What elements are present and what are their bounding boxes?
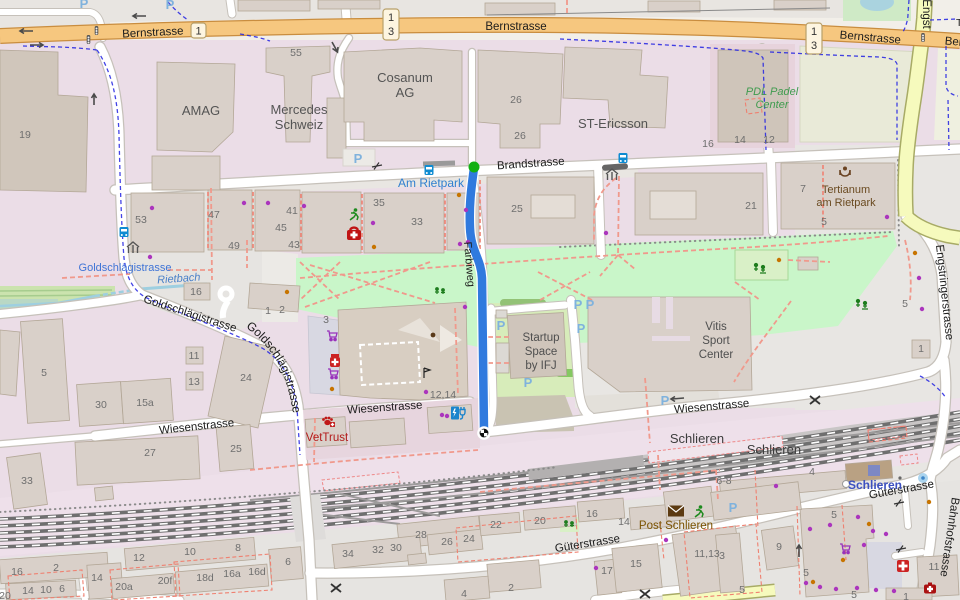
svg-text:by IFJ: by IFJ (525, 360, 556, 372)
svg-text:2: 2 (508, 582, 514, 594)
svg-text:P: P (80, 0, 89, 11)
svg-text:Bernstrasse: Bernstrasse (485, 21, 546, 33)
svg-text:5: 5 (831, 509, 837, 521)
svg-text:1: 1 (903, 591, 909, 600)
svg-text:VetTrust: VetTrust (306, 432, 349, 444)
svg-text:33: 33 (411, 216, 423, 228)
svg-text:43: 43 (288, 239, 300, 251)
svg-text:Schlieren: Schlieren (747, 442, 801, 457)
svg-text:1: 1 (388, 12, 394, 24)
svg-text:AG: AG (396, 85, 415, 100)
svg-text:35: 35 (373, 197, 385, 209)
svg-text:3: 3 (323, 314, 329, 326)
svg-text:Vitis: Vitis (705, 321, 727, 333)
svg-text:Schlieren: Schlieren (670, 431, 724, 446)
svg-text:1: 1 (918, 343, 924, 355)
svg-text:3: 3 (388, 26, 394, 38)
svg-text:PDL Padel: PDL Padel (746, 86, 799, 98)
svg-text:3: 3 (719, 550, 725, 562)
svg-text:Goldschlägistrasse: Goldschlägistrasse (79, 262, 172, 274)
svg-text:16: 16 (11, 566, 23, 578)
svg-text:4: 4 (461, 588, 467, 600)
svg-text:am Rietpark: am Rietpark (816, 197, 876, 209)
svg-text:53: 53 (135, 214, 147, 226)
svg-text:16: 16 (702, 138, 714, 150)
svg-text:P: P (577, 321, 586, 336)
svg-text:P: P (574, 297, 583, 312)
svg-text:14: 14 (618, 516, 630, 528)
svg-text:Tertianum: Tertianum (822, 184, 870, 196)
svg-text:28: 28 (415, 529, 427, 541)
svg-text:12: 12 (133, 552, 145, 564)
svg-text:Am Rietpark: Am Rietpark (398, 176, 465, 190)
svg-text:27: 27 (144, 447, 156, 459)
svg-text:8: 8 (235, 542, 241, 554)
svg-text:13: 13 (188, 376, 200, 388)
svg-text:15a: 15a (136, 397, 154, 409)
svg-text:21: 21 (745, 200, 757, 212)
svg-text:30: 30 (95, 399, 107, 411)
svg-text:18d: 18d (196, 572, 214, 584)
svg-text:20f: 20f (158, 575, 173, 587)
svg-text:15: 15 (630, 558, 642, 570)
svg-text:20: 20 (534, 515, 546, 527)
svg-text:9: 9 (776, 541, 782, 553)
svg-text:26: 26 (510, 94, 522, 106)
svg-text:14: 14 (22, 585, 34, 597)
svg-text:P: P (586, 297, 595, 312)
svg-text:ST-Ericsson: ST-Ericsson (578, 116, 648, 131)
svg-text:11,13: 11,13 (694, 548, 720, 560)
svg-text:6-8: 6-8 (716, 475, 731, 487)
svg-text:P: P (166, 0, 175, 12)
svg-text:5: 5 (739, 584, 745, 596)
svg-text:55: 55 (290, 47, 302, 59)
svg-text:6: 6 (285, 556, 291, 568)
svg-text:25: 25 (511, 203, 523, 215)
svg-text:Schweiz: Schweiz (275, 117, 323, 132)
svg-text:AMAG: AMAG (182, 103, 220, 118)
svg-text:Schlieren: Schlieren (848, 478, 902, 492)
svg-text:45: 45 (275, 222, 287, 234)
svg-text:Mercedes: Mercedes (270, 102, 328, 117)
svg-text:32: 32 (372, 544, 384, 556)
svg-text:19: 19 (19, 129, 31, 141)
svg-text:20a: 20a (115, 581, 133, 593)
svg-text:26: 26 (441, 536, 453, 548)
svg-text:P: P (354, 151, 363, 166)
svg-text:12: 12 (763, 134, 775, 146)
svg-text:10: 10 (184, 546, 196, 558)
svg-text:3: 3 (811, 40, 817, 52)
svg-text:17: 17 (601, 565, 613, 577)
svg-text:49: 49 (228, 240, 240, 252)
svg-text:Center: Center (699, 349, 734, 361)
svg-text:Post Schlieren: Post Schlieren (639, 520, 713, 532)
svg-text:12,14: 12,14 (430, 389, 456, 401)
svg-text:34: 34 (342, 548, 354, 560)
svg-text:16: 16 (190, 286, 202, 298)
svg-text:6: 6 (59, 583, 65, 595)
svg-text:Space: Space (525, 346, 558, 358)
svg-text:5: 5 (851, 589, 857, 600)
svg-text:Sport: Sport (702, 335, 730, 347)
svg-text:33: 33 (21, 475, 33, 487)
svg-text:10: 10 (40, 584, 52, 596)
svg-text:14: 14 (91, 572, 103, 584)
svg-text:Startup: Startup (522, 332, 559, 344)
svg-text:5: 5 (902, 298, 908, 310)
svg-text:14: 14 (734, 134, 746, 146)
svg-text:5: 5 (803, 567, 809, 579)
svg-text:4: 4 (809, 466, 815, 478)
svg-text:30: 30 (390, 542, 402, 554)
svg-text:1: 1 (195, 26, 201, 38)
svg-text:1: 1 (811, 26, 817, 38)
svg-text:16d: 16d (248, 566, 266, 578)
svg-text:16a: 16a (223, 568, 241, 580)
svg-text:Center: Center (755, 99, 789, 111)
svg-text:24: 24 (463, 533, 475, 545)
svg-text:41: 41 (286, 205, 298, 217)
svg-text:7: 7 (800, 183, 806, 195)
svg-text:26: 26 (514, 130, 526, 142)
svg-text:P: P (729, 500, 738, 515)
svg-text:Engst: Engst (920, 0, 932, 30)
svg-text:16: 16 (586, 508, 598, 520)
svg-text:Tä: Tä (956, 17, 960, 29)
svg-text:11: 11 (189, 350, 200, 362)
svg-text:5: 5 (41, 367, 47, 379)
svg-text:22: 22 (490, 519, 502, 531)
svg-text:24: 24 (240, 372, 252, 384)
svg-text:P: P (497, 318, 506, 333)
svg-text:5: 5 (821, 216, 827, 228)
svg-text:11: 11 (929, 561, 940, 573)
svg-text:P: P (661, 393, 670, 408)
svg-text:2: 2 (279, 304, 285, 316)
svg-text:20: 20 (0, 590, 11, 600)
svg-text:Cosanum: Cosanum (377, 70, 433, 85)
svg-text:P: P (524, 375, 533, 390)
svg-text:47: 47 (208, 209, 220, 221)
svg-text:25: 25 (230, 443, 242, 455)
svg-text:2: 2 (53, 562, 59, 574)
svg-text:1: 1 (265, 305, 271, 317)
